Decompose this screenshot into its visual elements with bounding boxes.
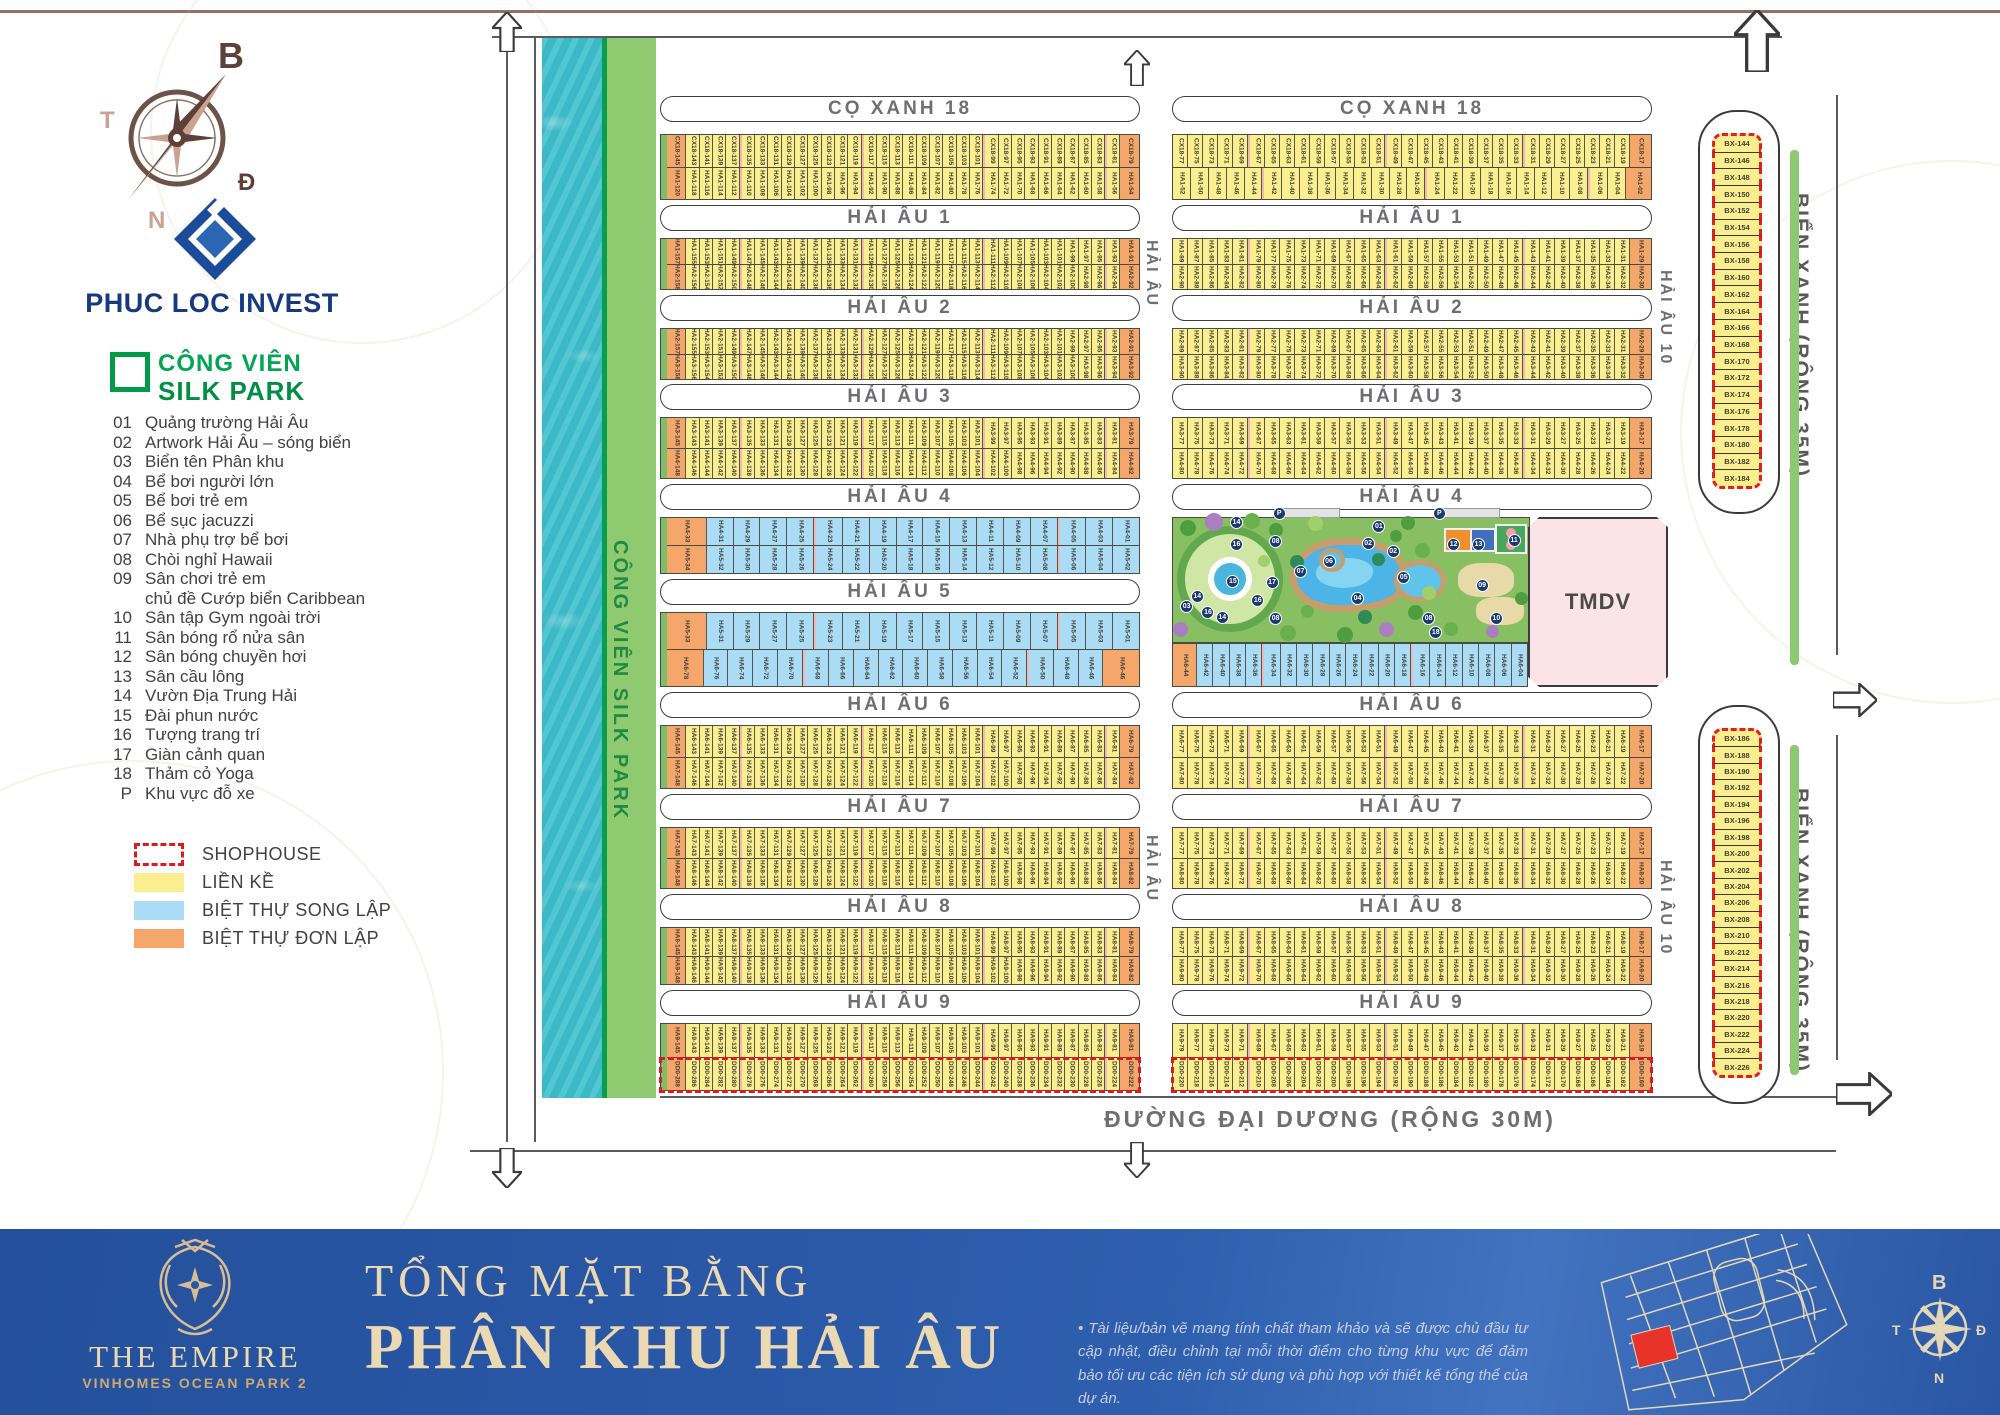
lot-cell: HA9-97 <box>999 1024 1012 1057</box>
lot-cell: HA1-62 <box>1065 168 1078 200</box>
lot-label: HA2-124 <box>906 265 913 290</box>
lot-label: HA9-146 <box>689 957 696 983</box>
lot-label: HA4-92 <box>1055 452 1062 474</box>
lot-cell: BX-224 <box>1712 1042 1762 1058</box>
lot-cell: CX18-45 <box>1418 135 1433 167</box>
lot-label: HA8-129 <box>785 929 792 955</box>
lot-cell: HA7-70 <box>1248 758 1265 789</box>
lot-cell: HA2-100 <box>1065 265 1078 290</box>
lot-cell: HA8-43 <box>1433 928 1448 956</box>
lot-cell: HA2-122 <box>917 265 930 290</box>
lot-label: HA4-70 <box>1254 452 1261 474</box>
lot-label: DD0-286 <box>689 1061 696 1087</box>
lot-cell: HA8-118 <box>877 859 890 889</box>
lot-cell: HA3-49 <box>1385 418 1402 448</box>
amenity-label: Đài phun nước <box>145 706 258 726</box>
lot-label: HA3-130 <box>866 355 873 380</box>
lot-label: HA8-105 <box>946 929 953 955</box>
lot-cell: HA8-38 <box>1493 859 1508 889</box>
lot-label: HA8-143 <box>689 929 696 955</box>
lot-label: HA8-63 <box>1284 931 1291 953</box>
lot-cell: HA6-53 <box>1355 726 1370 757</box>
lot-cell: HA9-94 <box>1039 957 1052 985</box>
lot-label: HA3-61 <box>1299 422 1306 444</box>
lot-cell: HA5-04 <box>1086 546 1113 573</box>
lot-label: HA4-102 <box>988 450 995 476</box>
lot-cell: HA9-52 <box>1385 957 1402 985</box>
lot-label: CX18-37 <box>1481 138 1488 164</box>
amenity-list-item: 08Chòi nghỉ Hawaii <box>96 550 416 570</box>
lot-cell: HA4-38 <box>1493 449 1508 479</box>
lot-cell: DD0-258 <box>877 1058 890 1091</box>
lot-block: HA7-77HA7-75HA7-73HA7-71HA7-69HA7-67HA7-… <box>1172 827 1652 889</box>
lot-cell: HA3-87 <box>1065 418 1078 448</box>
lot-label: HA1-20 <box>1468 172 1475 194</box>
lot-label: HA9-121 <box>838 1027 845 1053</box>
lot-cell: HA8-120 <box>862 859 877 889</box>
lot-label: HA9-108 <box>946 957 953 983</box>
lot-cell: BX-202 <box>1712 861 1762 877</box>
lot-cell: HA1-84 <box>917 168 930 200</box>
lot-label: HA9-40 <box>1481 959 1488 981</box>
lot-label: HA2-67 <box>1344 330 1351 352</box>
lot-cell: HA6-41 <box>1448 726 1463 757</box>
lot-label: HA7-61 <box>1299 832 1306 854</box>
lot-label: HA3-141 <box>703 420 710 446</box>
lot-cell: HA3-122 <box>917 355 930 380</box>
lot-cell: BX-190 <box>1712 763 1762 779</box>
silk-park-legend-line1: CÔNG VIÊN <box>158 350 302 378</box>
lot-cell: HA9-106 <box>957 957 970 985</box>
lot-label: BX-200 <box>1724 849 1749 858</box>
lot-cell: HA2-82 <box>1233 265 1248 290</box>
lot-label: HA1-115 <box>960 239 967 264</box>
lot-cell: HA2-140 <box>795 265 808 290</box>
road-line <box>1836 735 1838 1060</box>
lot-cell: HA7-55 <box>1340 828 1355 858</box>
lot-cell: HA7-64 <box>1295 758 1310 789</box>
lot-cell: HA1-08 <box>1570 168 1588 200</box>
lot-cell: HA1-135 <box>822 239 835 264</box>
amenity-badge: 09 <box>1476 579 1489 592</box>
lot-label: HA2-119 <box>933 329 940 354</box>
lot-label: HA1-58 <box>1095 172 1102 194</box>
lot-label: HA4-132 <box>785 450 792 476</box>
lot-cell: HA8-61 <box>1295 928 1310 956</box>
lot-label: DD0-170 <box>1559 1061 1566 1087</box>
lot-label: HA6-131 <box>771 728 778 754</box>
lot-label: HA4-144 <box>703 450 710 476</box>
lot-cell: BX-204 <box>1712 878 1762 894</box>
lot-cell: BX-200 <box>1712 845 1762 861</box>
lot-cell: HA3-109 <box>917 418 930 448</box>
lot-label: HA8-139 <box>716 929 723 955</box>
lot-label: HA8-55 <box>1344 931 1351 953</box>
lot-cell: HA2-87 <box>1188 329 1203 354</box>
lot-label: HA6-45 <box>1421 730 1428 752</box>
lot-label: HA1-106 <box>771 170 778 196</box>
lot-label: HA2-148 <box>745 265 752 290</box>
lot-cell: HA8-67 <box>1248 928 1265 956</box>
lot-label: HA7-63 <box>1284 832 1291 854</box>
lot-label: BX-158 <box>1724 256 1749 265</box>
lot-row: HA4-33HA4-31HA4-29HA4-27HA4-25HA4-23HA4-… <box>667 518 1139 545</box>
lot-cell: HA2-130 <box>862 265 877 290</box>
lot-cell: HA8-83 <box>1092 928 1105 956</box>
lot-label: HA1-53 <box>1451 240 1458 262</box>
amenity-list-item: 11Sân bóng rổ nửa sân <box>96 628 416 648</box>
lot-label: HA9-32 <box>1544 959 1551 981</box>
lot-cell: HA3-54 <box>1448 355 1463 380</box>
lot-label: HA6-64 <box>863 657 870 679</box>
lot-cell: HA3-112 <box>983 355 998 380</box>
lot-cell: HA3-143 <box>686 418 699 448</box>
lot-cell: HA2-137 <box>808 329 821 354</box>
lot-label: HA4-74 <box>1222 452 1229 474</box>
lot-cell: HA3-30 <box>1630 355 1651 380</box>
green-strip <box>661 1024 667 1090</box>
lot-cell: BX-152 <box>1712 202 1762 219</box>
lot-cell: DD0-260 <box>862 1058 877 1091</box>
lot-label: HA7-37 <box>1481 832 1488 854</box>
lot-label: HA8-124 <box>838 860 845 886</box>
lot-cell: CX18-145 <box>667 135 686 167</box>
lot-label: HA4-80 <box>1177 452 1184 474</box>
lot-label: HA3-113 <box>893 420 900 446</box>
bx-shophouse-column: BX-144BX-146BX-148BX-150BX-152BX-154BX-1… <box>1712 133 1762 489</box>
lot-label: HA8-40 <box>1481 862 1488 884</box>
lot-cell: BX-148 <box>1712 168 1762 185</box>
lot-label: HA1-100 <box>811 170 818 196</box>
lot-label: HA1-147 <box>745 239 752 264</box>
lot-cell: HA2-47 <box>1493 329 1508 354</box>
lot-cell: HA6-47 <box>1402 726 1417 757</box>
lot-cell: HA2-152 <box>713 265 726 290</box>
lot-label: CX18-21 <box>1604 138 1611 164</box>
lot-label: HA9-124 <box>838 957 845 983</box>
lot-label: HA3-97 <box>1002 422 1009 444</box>
lot-label: HA3-55 <box>1344 422 1351 444</box>
lot-cell: HA6-97 <box>999 726 1012 757</box>
lot-label: HA8-30 <box>1559 862 1566 884</box>
lot-cell: HA7-131 <box>768 828 781 858</box>
lot-label: HA3-129 <box>785 420 792 446</box>
lot-row: HA8-80HA8-78HA8-76HA8-74HA8-72HA8-70HA8-… <box>1173 858 1651 889</box>
lot-cell: HA1-108 <box>755 168 768 200</box>
lot-cell: HA5-25 <box>787 613 814 649</box>
lot-label: HA3-142 <box>785 355 792 380</box>
amenity-label: Sân bóng rổ nửa sân <box>145 628 305 648</box>
lot-label: HA8-73 <box>1207 931 1214 953</box>
tmdv-label: TMDV <box>1565 589 1631 615</box>
lot-label: DD0-288 <box>673 1061 680 1087</box>
lot-label: HA3-89 <box>1055 422 1062 444</box>
lot-label: HA4-17 <box>906 520 913 542</box>
lot-cell: DD0-244 <box>970 1058 983 1091</box>
lot-cell: HA4-19 <box>870 518 897 545</box>
lot-cell: HA9-50 <box>1402 957 1417 985</box>
lot-cell: HA6-27 <box>1555 726 1570 757</box>
lot-cell: HA1-99 <box>1065 239 1078 264</box>
lot-label: HA9-72 <box>1237 959 1244 981</box>
lot-label: HA2-98 <box>1081 266 1088 288</box>
lot-cell: HA2-56 <box>1433 265 1448 290</box>
road-line <box>492 36 1782 38</box>
lot-cell: HA2-58 <box>1418 265 1433 290</box>
lot-label: HA8-64 <box>1299 862 1306 884</box>
lot-label: DD0-274 <box>771 1061 778 1087</box>
lot-label: HA1-103 <box>1042 239 1049 264</box>
lot-label: HA8-125 <box>811 929 818 955</box>
lot-label: HA2-110 <box>1002 265 1009 290</box>
lot-label: HA8-133 <box>758 929 765 955</box>
lot-cell: HA8-104 <box>970 859 983 889</box>
lot-cell: HA2-92 <box>1120 265 1138 290</box>
lot-label: HA1-75 <box>1284 240 1291 262</box>
lot-label: HA2-66 <box>1359 266 1366 288</box>
lot-cell: HA3-154 <box>700 355 713 380</box>
lot-cell: HA9-53 <box>1370 1024 1385 1057</box>
lot-label: HA8-25 <box>1574 931 1581 953</box>
lot-cell: HA9-73 <box>1218 1024 1233 1057</box>
lot-cell: HA2-147 <box>740 329 755 354</box>
lot-cell: HA7-69 <box>1233 828 1248 858</box>
lot-cell: HA8-116 <box>890 859 903 889</box>
lot-cell: HA1-54 <box>1120 168 1138 200</box>
lot-cell: HA4-90 <box>1065 449 1078 479</box>
lot-cell: HA7-91 <box>1039 828 1052 858</box>
lot-label: HA7-106 <box>960 760 967 786</box>
lot-cell: HA8-144 <box>700 859 713 889</box>
street-pill: HẢI ÂU 1 <box>1172 205 1652 231</box>
green-strip <box>661 726 667 788</box>
lot-label: HA5-23 <box>826 620 833 642</box>
street-pill: HẢI ÂU 4 <box>660 484 1140 510</box>
lot-label: HA7-70 <box>1254 762 1261 784</box>
lot-label: HA9-70 <box>1254 959 1261 981</box>
lot-cell: HA9-54 <box>1370 957 1385 985</box>
lot-label: HA2-69 <box>1329 330 1336 352</box>
lot-cell: HA8-105 <box>943 928 956 956</box>
lot-label: HA3-106 <box>1028 355 1035 380</box>
lot-row: HA9-145HA9-143HA9-141HA9-139HA9-137HA9-1… <box>667 1024 1139 1057</box>
lot-cell: HA1-127 <box>877 239 890 264</box>
lot-cell: HA2-32 <box>1615 265 1630 290</box>
street-label: CỌ XANH 18 <box>1340 98 1484 120</box>
lot-label: HA8-85 <box>1081 931 1088 953</box>
lot-label: HA8-142 <box>716 860 723 886</box>
lot-cell: HA3-73 <box>1203 418 1218 448</box>
lot-cell: HA2-38 <box>1570 265 1585 290</box>
lot-cell: HA7-116 <box>890 758 903 789</box>
lot-label: HA6-76 <box>712 657 719 679</box>
lot-label: HA6-27 <box>1559 730 1566 752</box>
lot-label: DD0-200 <box>1329 1061 1336 1087</box>
lot-cell: HA1-147 <box>740 239 755 264</box>
lot-cell: HA1-10 <box>1552 168 1570 200</box>
lot-label: HA8-31 <box>1528 931 1535 953</box>
lot-label: HA4-108 <box>946 450 953 476</box>
lot-cell: CX18-143 <box>686 135 699 167</box>
lot-cell: CX18-39 <box>1463 135 1478 167</box>
lot-label: HA7-28 <box>1574 762 1581 784</box>
lot-cell: HA4-86 <box>1092 449 1105 479</box>
lot-label: HA8-130 <box>798 860 805 886</box>
lot-cell: HA4-32 <box>1540 449 1555 479</box>
lot-cell: BX-196 <box>1712 812 1762 828</box>
lot-label: HA8-88 <box>1081 862 1088 884</box>
lot-cell: HA2-40 <box>1555 265 1570 290</box>
lot-label: HA1-02 <box>1635 172 1642 194</box>
lot-cell: HA1-157 <box>667 239 686 264</box>
lot-label: HA9-30 <box>1559 959 1566 981</box>
lot-label: HA6-77 <box>1177 730 1184 752</box>
lot-label: BX-164 <box>1724 307 1749 316</box>
lot-label: HA7-17 <box>1637 832 1644 854</box>
lot-cell: HA7-45 <box>1418 828 1433 858</box>
lot-cell: HA2-31 <box>1615 329 1630 354</box>
legend-label: SHOPHOUSE <box>202 844 322 865</box>
lot-cell: HA9-148 <box>667 957 686 985</box>
lot-cell: CX18-141 <box>700 135 713 167</box>
street-label: HẢI ÂU 3 <box>847 386 952 408</box>
lot-cell: HA1-38 <box>1300 168 1318 200</box>
lot-cell: HA8-31 <box>1523 928 1540 956</box>
lot-cell: CX18-23 <box>1585 135 1600 167</box>
street-label: HẢI ÂU 2 <box>847 297 952 319</box>
lot-label: HA2-43 <box>1528 330 1535 352</box>
lot-label: HA3-45 <box>1421 422 1428 444</box>
lot-cell: HA1-118 <box>686 168 699 200</box>
lot-label: HA3-40 <box>1559 356 1566 378</box>
lot-cell: HA4-126 <box>822 449 835 479</box>
lot-label: HA2-132 <box>851 265 858 290</box>
lot-label: HA1-119 <box>933 239 940 264</box>
lot-cell: HA3-118 <box>943 355 956 380</box>
lot-cell: HA9-129 <box>782 1024 795 1057</box>
amenity-number: 08 <box>96 550 145 570</box>
lot-cell: HA3-158 <box>667 355 686 380</box>
lot-label: HA7-32 <box>1544 762 1551 784</box>
green-strip <box>661 239 667 289</box>
street-label: HẢI ÂU 6 <box>1359 694 1464 716</box>
lot-label: HA1-129 <box>866 239 873 264</box>
lot-label: CX18-135 <box>745 136 752 165</box>
lot-label: HA3-102 <box>1055 355 1062 380</box>
lot-cell: HA8-30 <box>1555 859 1570 889</box>
lot-label: HA7-39 <box>1466 832 1473 854</box>
lot-cell: HA7-88 <box>1079 758 1092 789</box>
lot-label: HA2-71 <box>1314 330 1321 352</box>
lot-label: HA5-30 <box>743 548 750 570</box>
lot-label: HA9-94 <box>1042 959 1049 981</box>
lot-cell: CX18-33 <box>1508 135 1523 167</box>
green-strip <box>661 518 667 573</box>
lot-label: HA1-08 <box>1575 172 1582 194</box>
lot-label: DD0-260 <box>866 1061 873 1087</box>
lot-cell: HA8-103 <box>957 928 970 956</box>
lot-cell: HA9-41 <box>1463 1024 1478 1057</box>
lot-cell: DD0-160 <box>1630 1058 1651 1091</box>
lot-cell: HA3-139 <box>713 418 726 448</box>
lot-cell: HA2-89 <box>1173 329 1188 354</box>
lot-cell: HA3-27 <box>1555 418 1570 448</box>
lot-label: HA2-123 <box>906 329 913 354</box>
lot-cell: HA3-67 <box>1248 418 1265 448</box>
lot-label: HA3-62 <box>1391 356 1398 378</box>
lot-label: HA9-111 <box>906 1028 913 1053</box>
lot-label: HA2-59 <box>1406 330 1413 352</box>
lot-label: HA7-53 <box>1359 832 1366 854</box>
amenity-list-item: 01Quảng trường Hải Âu <box>96 413 416 433</box>
lot-label: HA1-59 <box>1406 240 1413 262</box>
lot-cell: HA1-151 <box>713 239 726 264</box>
lot-row: HA9-79HA9-77HA9-75HA9-73HA9-71HA9-69HA9-… <box>1173 1024 1651 1057</box>
lot-label: HA9-77 <box>1192 1029 1199 1051</box>
lot-block: HA5-33HA5-31HA5-29HA5-27HA5-25HA5-23HA5-… <box>660 612 1140 687</box>
lot-cell: HA8-51 <box>1370 928 1385 956</box>
lot-cell: HA8-80 <box>1173 859 1188 889</box>
lot-label: HA7-134 <box>771 760 778 786</box>
lot-cell: HA3-56 <box>1433 355 1448 380</box>
lot-cell: HA8-41 <box>1448 928 1463 956</box>
lot-label: CX18-117 <box>866 136 873 165</box>
lot-cell: HA7-48 <box>1418 758 1433 789</box>
lot-cell: CX18-27 <box>1555 135 1570 167</box>
lot-cell: HA7-94 <box>1039 758 1052 789</box>
lot-label: BX-184 <box>1724 474 1749 483</box>
lot-label: HA7-41 <box>1451 832 1458 854</box>
lot-label: HA8-90 <box>1068 862 1075 884</box>
lot-label: HA3-75 <box>1192 422 1199 444</box>
street-pill: HẢI ÂU 8 <box>660 894 1140 920</box>
lot-cell: HA6-62 <box>879 650 904 686</box>
lot-label: HA1-145 <box>758 239 765 264</box>
lot-label: CX18-33 <box>1511 138 1518 164</box>
lot-label: HA1-89 <box>1177 240 1184 262</box>
lot-cell: HA1-98 <box>822 168 835 200</box>
tree-icon <box>1408 605 1423 620</box>
legend-label: BIỆT THỰ SONG LẬP <box>202 900 391 921</box>
lot-label: BX-192 <box>1724 783 1749 792</box>
lot-cell: HA3-100 <box>1065 355 1078 380</box>
lot-cell: HA8-40 <box>1478 859 1493 889</box>
lot-label: HA7-59 <box>1314 832 1321 854</box>
lot-cell: HA8-23 <box>1585 928 1600 956</box>
lot-cell: HA8-139 <box>713 928 726 956</box>
lot-label: HA7-126 <box>825 760 832 786</box>
lot-block: HA6-145HA6-143HA6-141HA6-139HA6-137HA6-1… <box>660 725 1140 789</box>
lot-cell: HA2-115 <box>957 329 970 354</box>
lot-label: HA2-133 <box>838 329 845 354</box>
lot-label: HA7-36 <box>1511 762 1518 784</box>
lot-cell: DD0-268 <box>808 1058 821 1091</box>
amenity-list-item: 10Sân tập Gym ngoài trời <box>96 608 416 628</box>
lot-cell: HA4-24 <box>1600 449 1615 479</box>
lot-label: HA9-104 <box>973 957 980 983</box>
lot-cell: HA1-50 <box>1191 168 1209 200</box>
lot-cell: CX18-51 <box>1370 135 1385 167</box>
lot-label: HA3-108 <box>1015 355 1022 380</box>
lot-label: HA2-51 <box>1466 330 1473 352</box>
lot-cell: HA2-124 <box>903 265 916 290</box>
lot-label: HA8-20 <box>1637 862 1644 884</box>
lot-label: HA2-152 <box>716 265 723 290</box>
lot-label: HA1-86 <box>906 172 913 194</box>
lot-label: HA6-26 <box>1334 654 1341 676</box>
lot-label: HA3-127 <box>798 420 805 446</box>
lot-cell: HA6-95 <box>1012 726 1025 757</box>
